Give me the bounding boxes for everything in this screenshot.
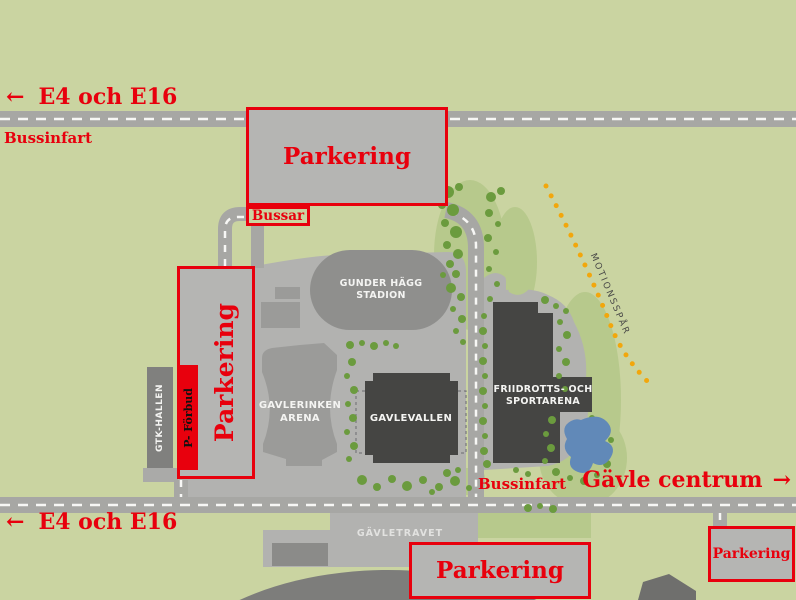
- arrow-left-icon: ←: [6, 84, 24, 110]
- e4-e16-label-bottom: ← E4 och E16: [6, 509, 177, 535]
- small-building-a: [275, 287, 300, 299]
- gavletravet-label: GÄVLETRAVET: [340, 528, 460, 539]
- parking-north-label: Parkering: [283, 143, 411, 170]
- grandstand-wedge: [638, 574, 696, 600]
- gavle-sports-area-map: Parkering Bussar Parkering P- Förbud Par…: [0, 0, 796, 600]
- parking-box-southeast: Parkering: [708, 526, 795, 582]
- gtk-hallen-label: GTK-HALLEN: [146, 367, 173, 468]
- friidrotts-label: FRIIDROTTS- OCH SPORTARENA: [483, 384, 603, 409]
- arrow-left-icon: ←: [6, 509, 24, 535]
- e4-e16-top-text: E4 och E16: [38, 84, 177, 110]
- e4-e16-bottom-text: E4 och E16: [38, 509, 177, 535]
- arrow-right-icon: →: [773, 467, 791, 493]
- bussinfart-label-top: Bussinfart: [4, 129, 92, 147]
- gavletravet-building: [272, 543, 328, 566]
- road-bussar-stub: [251, 224, 264, 268]
- gavlevallen-label: GAVLEVALLEN: [363, 412, 459, 425]
- p-forbud-strip: P- Förbud: [179, 365, 198, 470]
- bussar-box: Bussar: [246, 206, 310, 226]
- bussar-label: Bussar: [252, 208, 304, 224]
- gavle-centrum-label: Gävle centrum →: [582, 467, 791, 493]
- small-building-b: [261, 302, 300, 328]
- gavlerinken-label: GAVLERINKEN ARENA: [252, 399, 348, 425]
- parking-southeast-label: Parkering: [713, 546, 791, 562]
- gavle-centrum-text: Gävle centrum: [582, 467, 762, 493]
- p-forbud-label: P- Förbud: [182, 388, 195, 448]
- parking-west-label: Parkering: [210, 303, 239, 442]
- gtk-pad: [143, 468, 178, 482]
- e4-e16-label-top: ← E4 och E16: [6, 84, 177, 110]
- parking-box-north: Parkering: [246, 107, 448, 206]
- parking-box-south: Parkering: [409, 542, 591, 599]
- bussinfart-label-bottom: Bussinfart: [478, 475, 566, 493]
- parking-south-label: Parkering: [436, 557, 564, 584]
- gunder-hagg-label: GUNDER HÄGG STADION: [321, 278, 441, 303]
